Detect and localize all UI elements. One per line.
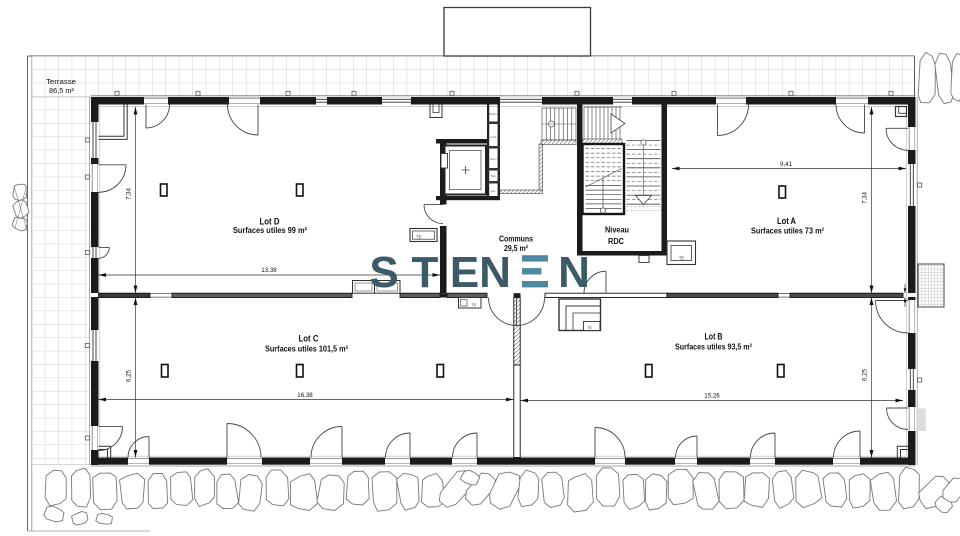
svg-text:Terrasse: Terrasse xyxy=(46,77,76,86)
svg-text:E: E xyxy=(450,248,479,297)
svg-text:S: S xyxy=(369,248,398,297)
svg-text:Lot B: Lot B xyxy=(705,332,723,342)
svg-text:T: T xyxy=(412,248,439,297)
svg-text:Surfaces utiles 93,5 m²: Surfaces utiles 93,5 m² xyxy=(675,343,752,352)
svg-text:TE: TE xyxy=(471,302,476,307)
svg-text:ELEC: ELEC xyxy=(489,112,498,116)
svg-text:7,34: 7,34 xyxy=(126,187,133,200)
svg-text:TE: TE xyxy=(416,234,422,239)
svg-text:9,41: 9,41 xyxy=(780,161,793,168)
svg-text:Surfaces utiles 99 m²: Surfaces utiles 99 m² xyxy=(233,226,307,235)
svg-text:N: N xyxy=(558,248,590,297)
svg-text:N: N xyxy=(479,248,511,297)
svg-text:GAZ: GAZ xyxy=(490,135,496,139)
svg-text:Lot A: Lot A xyxy=(777,216,797,226)
svg-text:Lot D: Lot D xyxy=(260,217,280,227)
svg-text:EAU: EAU xyxy=(490,157,496,161)
svg-text:15,26: 15,26 xyxy=(704,393,720,400)
svg-text:Niveau: Niveau xyxy=(605,226,629,235)
svg-text:Surfaces utiles 73 m²: Surfaces utiles 73 m² xyxy=(751,227,824,236)
svg-text:RDC: RDC xyxy=(608,237,624,246)
svg-text:7,34: 7,34 xyxy=(862,191,869,204)
svg-text:16,38: 16,38 xyxy=(297,392,313,399)
svg-text:Surfaces utiles 101,5 m²: Surfaces utiles 101,5 m² xyxy=(265,345,348,354)
svg-text:TE: TE xyxy=(587,325,592,330)
svg-text:86,5 m²: 86,5 m² xyxy=(49,86,75,95)
svg-text:Communs: Communs xyxy=(499,235,533,244)
svg-text:TEL: TEL xyxy=(491,174,497,178)
svg-text:TE: TE xyxy=(679,256,685,261)
svg-text:6,25: 6,25 xyxy=(126,369,133,382)
svg-text:13,38: 13,38 xyxy=(261,267,277,274)
svg-text:6,25: 6,25 xyxy=(862,368,869,381)
svg-text:Lot C: Lot C xyxy=(299,334,320,344)
